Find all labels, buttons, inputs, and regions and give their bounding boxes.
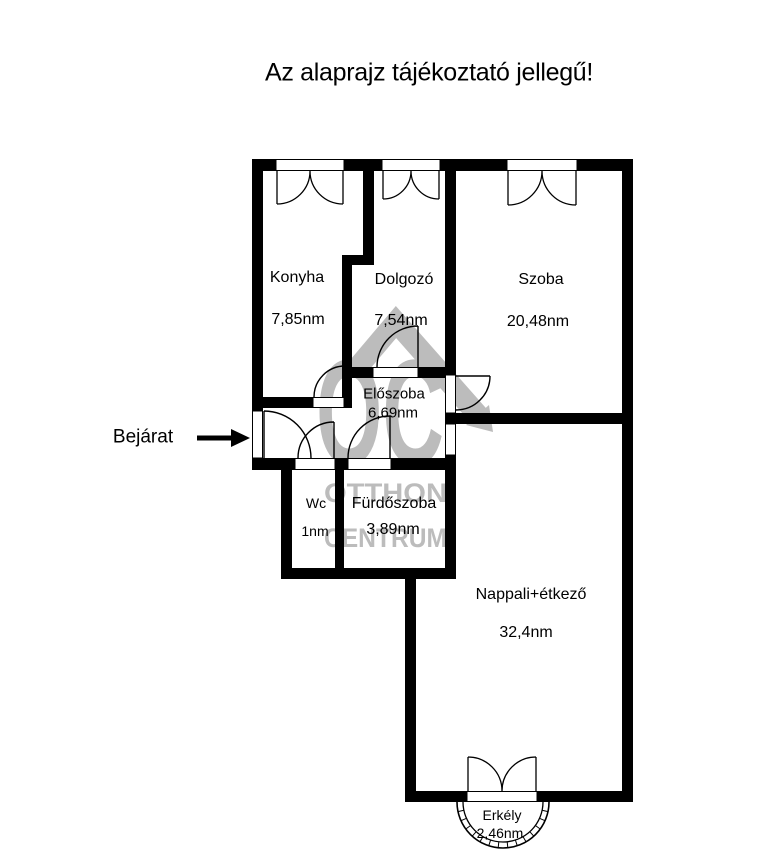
room-label-furdoszoba: Fürdőszoba <box>352 496 437 512</box>
room-door-gap <box>446 375 456 413</box>
kitchen-door-gap <box>313 398 344 408</box>
area-label-eloszoba: 6,69nm <box>368 406 418 421</box>
wall-wc-left <box>281 458 292 579</box>
wall-room-living-divider <box>445 413 633 424</box>
area-label-wc: 1nm <box>301 524 328 538</box>
entrance-arrowhead <box>231 429 250 447</box>
window-kitchen-icon <box>277 171 343 204</box>
wall-livingroom-left <box>405 568 416 802</box>
window-study-icon <box>383 171 439 199</box>
wall-jog <box>342 255 374 265</box>
room-label-erkely: Erkély <box>483 808 522 822</box>
area-label-szoba: 20,48nm <box>507 314 569 330</box>
living-passage-gap <box>446 424 456 455</box>
page-title: Az alaprajz tájékoztató jellegű! <box>265 61 593 86</box>
room-label-wc: Wc <box>306 496 326 510</box>
window-kitchen-gap <box>276 160 344 171</box>
study-door-gap <box>373 368 418 378</box>
area-label-furdoszoba: 3,89nm <box>366 522 419 538</box>
entrance-label: Bejárat <box>113 428 173 447</box>
bath-door-gap <box>348 459 391 470</box>
window-room-gap <box>507 160 577 171</box>
room-label-konyha: Konyha <box>270 270 324 286</box>
wall-right <box>622 159 633 802</box>
wall-kitchen-hall <box>342 264 352 408</box>
area-label-nappali: 32,4nm <box>499 625 552 641</box>
window-study-gap <box>382 160 440 171</box>
balcony-door-gap <box>467 792 537 802</box>
balcony-door-icon <box>468 757 536 791</box>
wc-door-gap <box>295 459 335 470</box>
wall-central-vertical <box>445 171 456 568</box>
room-label-eloszoba: Előszoba <box>363 387 425 402</box>
wall-bath-bottom <box>281 568 456 579</box>
window-room-icon <box>508 171 576 205</box>
room-label-szoba: Szoba <box>518 272 563 288</box>
area-label-erkely: 2,46nm <box>477 826 524 840</box>
wall-wc-bath-divider <box>335 470 344 568</box>
entrance-door-swing <box>264 411 311 458</box>
area-label-konyha: 7,85nm <box>271 312 324 328</box>
floorplan-page: OC OTTHON CENTRUM <box>0 0 772 862</box>
room-label-dolgozo: Dolgozó <box>375 272 434 288</box>
entrance-arrow-icon <box>197 429 250 447</box>
area-label-dolgozo: 7,54nm <box>374 313 427 329</box>
room-label-nappali: Nappali+étkező <box>476 587 587 603</box>
entrance-door-gap <box>253 411 263 458</box>
wall-kitchen-study <box>363 171 374 255</box>
